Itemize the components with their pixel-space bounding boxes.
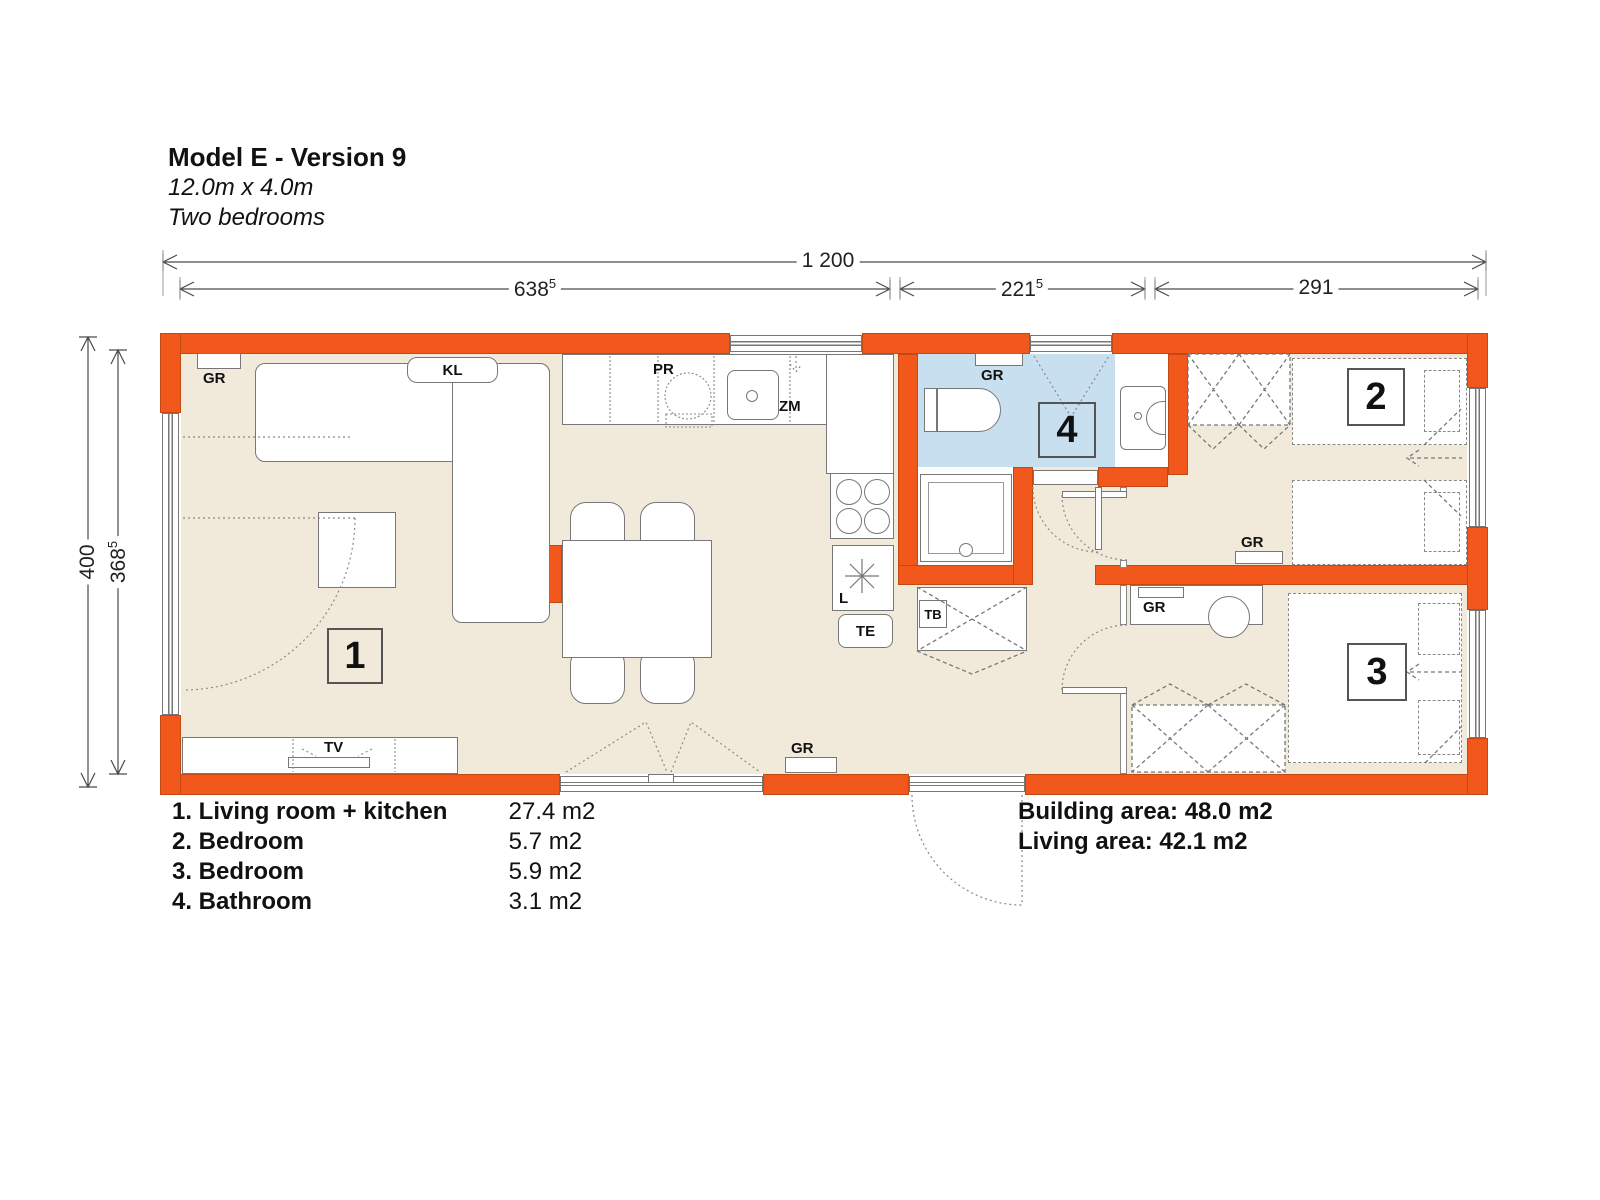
plan-linework [0,0,1600,1200]
legend-area: 5.7 m2 [509,828,582,856]
dim-total-height: 400 [76,539,100,584]
legend-row: 4. Bathroom 3.1 m2 [172,888,1072,916]
dim-seg3: 291 [1293,276,1338,300]
legend-row: 3. Bedroom 5.9 m2 [172,858,1072,886]
dim-seg1: 6385 [509,276,561,302]
legend-area: 5.9 m2 [509,858,582,886]
dim-seg2: 2215 [996,276,1048,302]
living-area: Living area: 42.1 m2 [1018,828,1247,856]
floor-plan-page: Model E - Version 9 12.0m x 4.0m Two bed… [0,0,1600,1200]
counter-details [293,356,790,772]
room-number-bedroom3: 3 [1347,643,1407,701]
building-area: Building area: 48.0 m2 [1018,798,1273,826]
radiator-label: GR [981,367,1004,384]
room-number-living: 1 [327,628,383,684]
dim-total-width: 1 200 [797,249,860,273]
radiator-label: GR [1143,599,1166,616]
legend-row: 1. Living room + kitchen 27.4 m2 [172,798,1072,826]
legend-area: 27.4 m2 [509,798,596,826]
fridge-label: L [839,590,848,607]
radiator-label: GR [203,370,226,387]
fridge-symbol [845,559,879,593]
tv-label: TV [324,739,343,756]
room-number-bathroom: 4 [1038,402,1096,458]
radiator-label: GR [1241,534,1264,551]
radiator-label: GR [791,740,814,757]
sink-label: ZM [779,398,801,415]
dim-inner-height: 3685 [105,536,131,588]
dimension-lines [79,253,1486,787]
legend-row: 2. Bedroom 5.7 m2 [172,828,1072,856]
washer-label: PR [653,361,674,378]
legend-label: 2. Bedroom [172,828,502,856]
room-number-bedroom2: 2 [1347,368,1405,426]
legend-label: 3. Bedroom [172,858,502,886]
legend-area: 3.1 m2 [509,888,582,916]
legend-label: 4. Bathroom [172,888,502,916]
legend-label: 1. Living room + kitchen [172,798,502,826]
